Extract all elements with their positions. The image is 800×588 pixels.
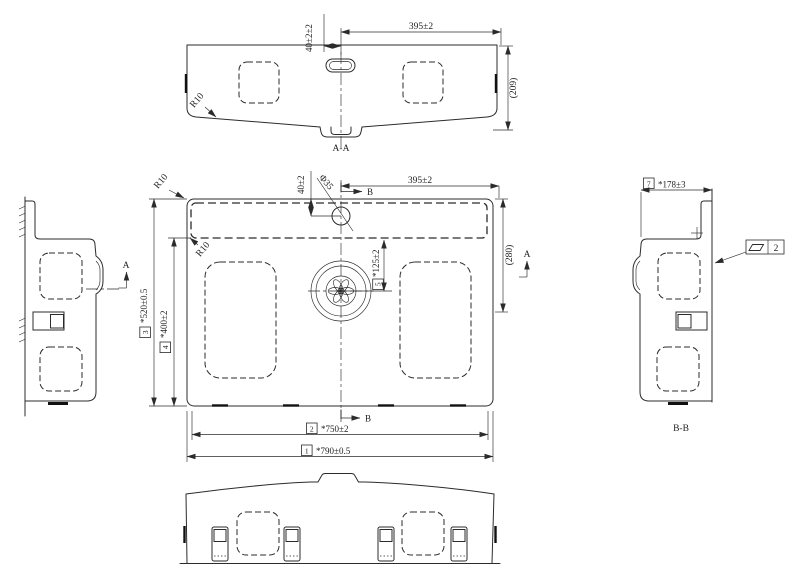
plan-bowl-right-dashed — [400, 262, 471, 378]
dim-790-plan: *790±0.5 — [316, 446, 351, 456]
section-arrow-b-bottom-label: B — [365, 414, 371, 424]
plan-r10-outer-leader — [169, 190, 184, 198]
view-left-side — [19, 197, 122, 416]
plan-bowl-left-dashed — [205, 262, 276, 378]
bb-emboss-top-dashed — [658, 253, 700, 299]
bottom-emboss-right-dashed — [402, 512, 444, 555]
dim-125-plan: *125±2 — [371, 250, 381, 277]
section-arrow-b-top-label: B — [367, 187, 373, 197]
section-arrow-a-left-label: A — [123, 261, 130, 271]
section-markers: A A B B — [119, 183, 531, 424]
drawing-sheet: 40±2±2 395±2 (209) R10 A-A Φ35 — [0, 0, 800, 588]
left-bulge-inner — [96, 261, 100, 290]
aa-outline-left-bottom — [187, 45, 320, 127]
foot-clip-2 — [284, 527, 300, 561]
aa-outline-right-bottom — [362, 45, 497, 127]
view-label-bb: B-B — [673, 424, 689, 434]
gdt-leader — [715, 252, 746, 263]
bottom-outline — [186, 474, 494, 564]
dim-750-plan: *750±2 — [321, 424, 348, 434]
sink-engineering-drawing: 40±2±2 395±2 (209) R10 A-A Φ35 — [0, 0, 800, 588]
dim-178-bb: *178±3 — [658, 180, 686, 190]
dim-40-plan: 40±2 — [296, 176, 306, 194]
dim-400-plan: *400±2 — [159, 311, 169, 338]
flatness-symbol-icon — [749, 245, 764, 251]
left-emboss-bottom-dashed — [40, 347, 82, 391]
dim-40-aa: 40±2±2 — [304, 24, 314, 52]
left-outline — [25, 201, 103, 401]
overflow-slot-outer — [326, 59, 355, 72]
dim-209-aa: (209) — [508, 78, 519, 99]
view-section-bb: 7 *178±3 2 B-B — [633, 178, 784, 434]
plan-outline — [187, 199, 493, 406]
gdt-flatness-frame: 2 — [715, 240, 784, 263]
radius-label-r10-plan-outer: R10 — [153, 172, 171, 191]
bb-emboss-bottom-dashed — [657, 347, 699, 391]
foot-clip-4 — [451, 527, 467, 561]
diameter-label-phi35: Φ35 — [316, 173, 334, 192]
aa-emboss-right-dashed — [403, 62, 443, 103]
plan-deck-dashed — [191, 203, 487, 238]
bb-outline — [633, 201, 712, 401]
view-plan: Φ35 40±2 395±2 — [139, 171, 515, 462]
aa-r10-leader — [205, 107, 216, 117]
plan-r10-deck-leader — [190, 238, 198, 245]
dim-395-plan: 395±2 — [408, 176, 432, 186]
dim-395-aa: 395±2 — [409, 22, 433, 32]
gdt-flatness-value: 2 — [774, 244, 779, 254]
dim-280-plan: (280) — [504, 245, 515, 266]
dim-520-plan: *520±0.5 — [139, 288, 149, 323]
view-section-aa: 40±2±2 395±2 (209) R10 A-A — [186, 14, 519, 154]
balloon-7: 7 — [647, 179, 651, 188]
foot-clip-1 — [212, 527, 228, 561]
overflow-slot-inner — [330, 62, 352, 70]
balloon-3: 3 — [141, 330, 150, 334]
bb-clip-square — [678, 315, 691, 329]
bb-bulge-inner — [636, 261, 640, 290]
foot-clip-3 — [378, 527, 394, 561]
section-arrow-a-right-label: A — [524, 250, 531, 260]
radius-label-r10-aa: R10 — [189, 91, 207, 110]
balloon-4: 4 — [161, 345, 170, 349]
left-clip-square — [51, 315, 64, 329]
aa-emboss-left-dashed — [239, 62, 279, 103]
balloon-1: 1 — [305, 446, 309, 455]
balloon-5: 5 — [374, 282, 383, 286]
left-wall-hatches — [19, 207, 25, 343]
balloon-2: 2 — [310, 424, 314, 433]
left-emboss-top-dashed — [40, 253, 82, 299]
view-bottom — [180, 474, 500, 564]
bottom-emboss-left-dashed — [237, 512, 279, 555]
radius-label-r10-plan-deck: R10 — [195, 240, 213, 259]
view-label-aa: A-A — [333, 144, 350, 154]
